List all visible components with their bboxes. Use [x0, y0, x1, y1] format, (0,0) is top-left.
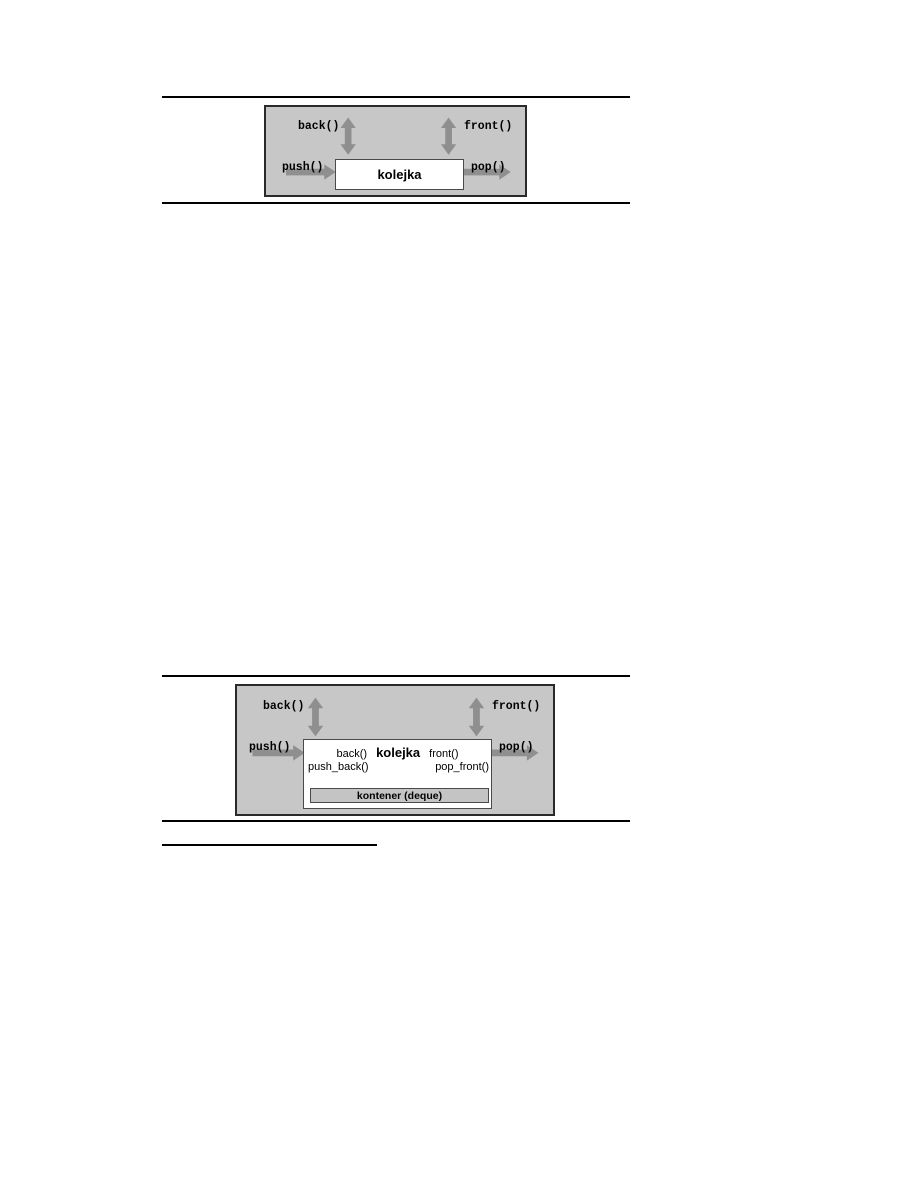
figure1-bottom-rule	[162, 202, 630, 204]
footnote-rule	[162, 844, 377, 846]
container-bar-label: kontener (deque)	[357, 790, 442, 802]
back-double-arrow-icon	[341, 118, 356, 155]
queue-implementation-diagram: back() front() push() pop() back() kolej…	[235, 684, 555, 816]
push-label: push()	[249, 742, 290, 753]
front-double-arrow-icon	[441, 118, 456, 155]
figure1-top-rule	[162, 96, 630, 98]
kolejka-box-header: back() kolejka front()	[304, 745, 491, 760]
figure2-bottom-rule	[162, 820, 630, 822]
figure2-top-rule	[162, 675, 630, 677]
pop-label: pop()	[471, 162, 506, 173]
back-label: back()	[298, 121, 339, 132]
document-page: back() front() push() pop() kolejka back…	[0, 0, 918, 1188]
front-double-arrow-icon	[469, 698, 485, 737]
front-label: front()	[492, 701, 540, 712]
back-double-arrow-icon	[308, 698, 324, 737]
kolejka-box: kolejka	[335, 159, 464, 190]
push-label: push()	[282, 162, 323, 173]
pop-front-label: pop_front()	[435, 761, 489, 773]
inner-front-label: front()	[429, 748, 458, 760]
container-bar: kontener (deque)	[310, 788, 489, 803]
kolejka-box: back() kolejka front() push_back() pop_f…	[303, 739, 492, 809]
back-label: back()	[263, 701, 304, 712]
push-back-label: push_back()	[308, 761, 369, 773]
inner-back-label: back()	[337, 748, 368, 760]
queue-interface-diagram: back() front() push() pop() kolejka	[264, 105, 527, 197]
front-label: front()	[464, 121, 512, 132]
pop-label: pop()	[499, 742, 534, 753]
kolejka-box-title: kolejka	[377, 167, 421, 182]
kolejka-box-title: kolejka	[376, 745, 420, 760]
